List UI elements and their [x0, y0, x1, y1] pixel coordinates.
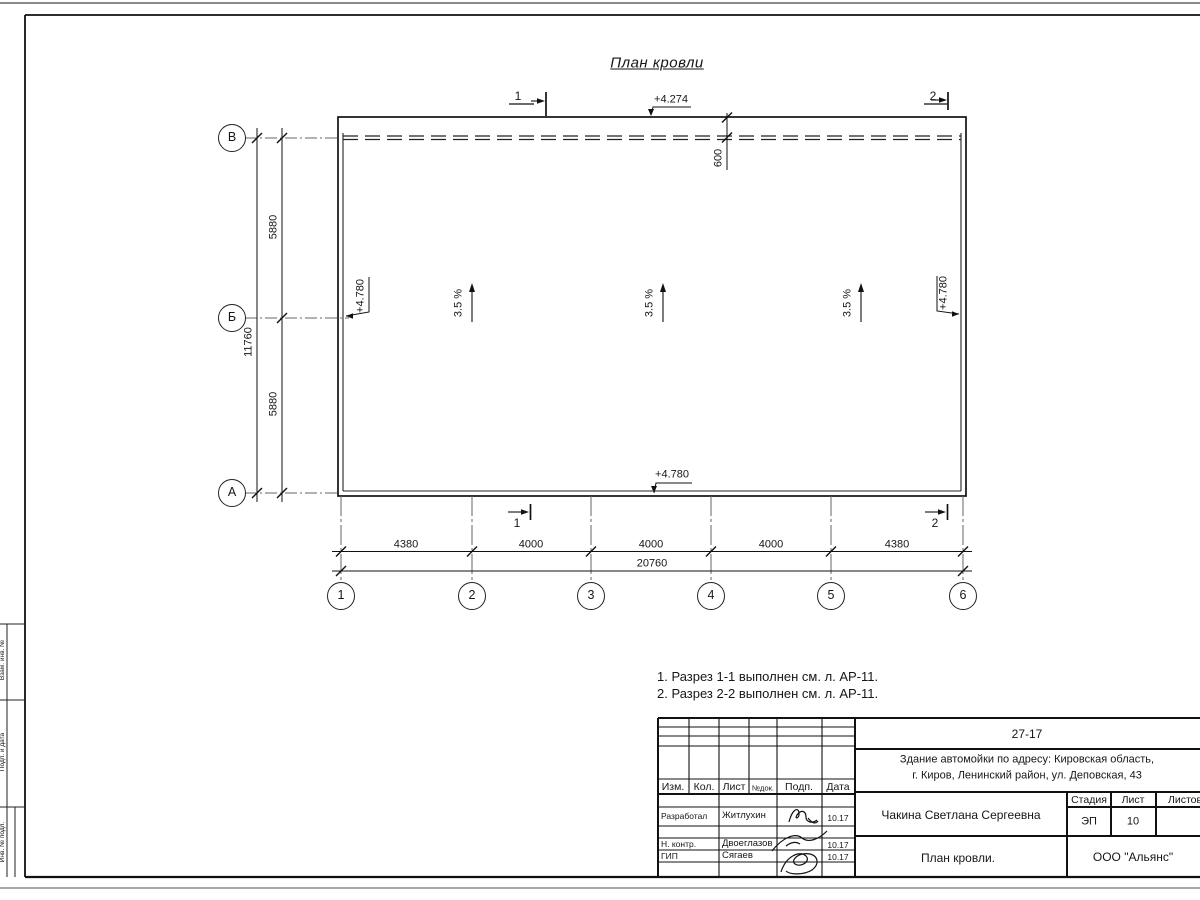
- v-dim-total: 11760: [244, 327, 255, 357]
- h-dim-total: 20760: [637, 559, 668, 570]
- date-nkontr: 10.17: [827, 841, 848, 850]
- axis-lines: [245, 138, 963, 583]
- axis-bubble-col-4: 4: [697, 582, 725, 610]
- section-mark-2-bottom-label: 2: [932, 517, 939, 529]
- role-nkontr: Н. контр.: [661, 840, 696, 849]
- project-address-line2: г. Киров, Ленинский район, ул. Деповская…: [912, 771, 1142, 782]
- v-dim-5880-top: 5880: [269, 215, 280, 239]
- project-address-line1: Здание автомойки по адресу: Кировская об…: [900, 755, 1154, 766]
- doc-number: 27-17: [1012, 728, 1043, 740]
- section-mark-1-bottom-label: 1: [514, 517, 521, 529]
- slope-label-3: 3.5 %: [843, 289, 854, 317]
- h-dim-1: 4380: [394, 540, 418, 551]
- rev-header-list: Лист: [723, 782, 746, 793]
- margin-stamp-inv: Инв. № подл.: [0, 822, 6, 863]
- section-mark-2-top-label: 2: [930, 90, 937, 102]
- h-dim-4: 4000: [759, 540, 783, 551]
- drawing-name: План кровли.: [921, 852, 995, 864]
- elevation-bottom: +4.780: [655, 470, 689, 481]
- rev-header-doc: №док.: [752, 784, 774, 792]
- axis-bubble-col-2: 2: [458, 582, 486, 610]
- name-syagaev: Сягаев: [722, 851, 753, 861]
- date-gip: 10.17: [827, 853, 848, 862]
- v-dim-5880-bottom: 5880: [269, 392, 280, 416]
- elevation-left: +4.780: [356, 279, 367, 313]
- stage-header: Стадия: [1071, 795, 1107, 806]
- margin-stamp-vzam: Взам. инв. №: [0, 640, 6, 680]
- h-dim-5: 4380: [885, 540, 909, 551]
- axis-bubble-col-6: 6: [949, 582, 977, 610]
- author-name: Чакина Светлана Сергеевна: [881, 809, 1040, 821]
- rev-header-izm: Изм.: [662, 782, 685, 793]
- signature-gip: [781, 854, 817, 874]
- vertical-dimensions-lines: [252, 128, 287, 502]
- section-marks: [508, 92, 948, 520]
- sheets-header: Листов: [1168, 795, 1200, 806]
- sheet-header: Лист: [1122, 795, 1145, 806]
- h-dim-2: 4000: [519, 540, 543, 551]
- rev-header-kol: Кол.: [694, 782, 715, 793]
- rev-header-data: Дата: [826, 782, 849, 793]
- margin-stamp-podp: Подп. и дата: [0, 733, 6, 771]
- drawing-title: План кровли: [610, 56, 704, 71]
- rev-header-podp: Подп.: [785, 782, 813, 793]
- elevation-top: +4.274: [654, 95, 688, 106]
- signature-nkontr: [772, 831, 827, 851]
- stage-value: ЭП: [1081, 817, 1097, 828]
- axis-bubble-row-b: Б: [218, 304, 246, 332]
- axis-bubble-row-v: В: [218, 124, 246, 152]
- section-mark-1-top-label: 1: [515, 90, 522, 102]
- signature-razrabotal: [789, 810, 818, 823]
- slope-arrows: [469, 283, 864, 322]
- note-1: 1. Разрез 1-1 выполнен см. л. АР-11.: [657, 670, 878, 683]
- axis-bubble-col-5: 5: [817, 582, 845, 610]
- date-razrabotal: 10.17: [827, 814, 848, 823]
- axis-bubble-col-1: 1: [327, 582, 355, 610]
- note-2: 2. Разрез 2-2 выполнен см. л. АР-11.: [657, 687, 878, 700]
- slope-label-2: 3.5 %: [645, 289, 656, 317]
- signatures: [772, 810, 827, 874]
- drawing-sheet: План кровли +4.274 +4.780 +4.780 +4.780 …: [0, 0, 1200, 900]
- role-razrabotal: Разработал: [661, 812, 707, 821]
- company-name: ООО "Альянс": [1093, 851, 1173, 863]
- elevation-right: +4.780: [939, 276, 950, 310]
- role-gip: ГИП: [661, 852, 678, 861]
- axis-bubble-col-3: 3: [577, 582, 605, 610]
- name-dvoeglazov: Двоеглазов: [722, 839, 773, 849]
- slope-label-1: 3.5 %: [454, 289, 465, 317]
- axis-bubble-row-a: А: [218, 479, 246, 507]
- sheet-number: 10: [1127, 817, 1139, 828]
- h-dim-3: 4000: [639, 540, 663, 551]
- name-zhitlukhin: Житлухин: [722, 811, 766, 821]
- overhang-dim-label: 600: [714, 149, 725, 167]
